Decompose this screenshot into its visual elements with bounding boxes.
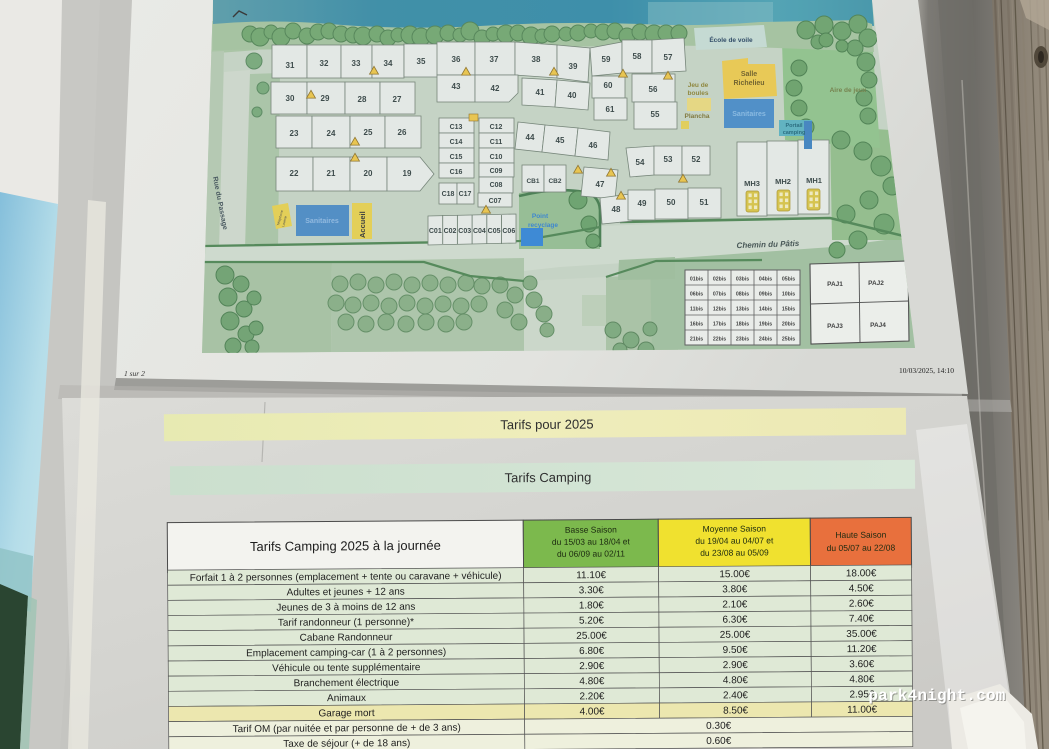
svg-text:2.60€: 2.60€	[849, 598, 875, 609]
svg-text:11.20€: 11.20€	[847, 644, 877, 655]
svg-text:Tarifs Camping: Tarifs Camping	[505, 470, 592, 486]
svg-text:du 15/03 au 18/04 et: du 15/03 au 18/04 et	[552, 536, 631, 547]
svg-text:6.80€: 6.80€	[579, 646, 605, 657]
svg-text:4.80€: 4.80€	[849, 674, 875, 685]
svg-text:Taxe de séjour (+ de 18 ans): Taxe de séjour (+ de 18 ans)	[283, 738, 410, 749]
svg-text:2.20€: 2.20€	[579, 691, 605, 702]
svg-text:2.90€: 2.90€	[723, 660, 749, 671]
svg-text:11.00€: 11.00€	[847, 704, 877, 715]
svg-text:du 19/04 au 04/07 et: du 19/04 au 04/07 et	[695, 535, 774, 546]
svg-text:0.60€: 0.60€	[706, 736, 732, 747]
svg-text:Garage mort: Garage mort	[318, 708, 374, 719]
svg-text:10/03/2025, 14:10: 10/03/2025, 14:10	[899, 366, 954, 375]
svg-text:Animaux: Animaux	[327, 693, 366, 704]
svg-text:Haute Saison: Haute Saison	[835, 530, 886, 540]
svg-text:Tarif OM (par nuitée et par pe: Tarif OM (par nuitée et par personne de …	[233, 723, 461, 736]
svg-text:18.00€: 18.00€	[846, 568, 877, 579]
svg-text:25.00€: 25.00€	[576, 631, 607, 642]
svg-text:du 23/08 au 05/09: du 23/08 au 05/09	[700, 547, 769, 557]
svg-text:Emplacement camping-car (1 à 2: Emplacement camping-car (1 à 2 personnes…	[246, 647, 446, 659]
svg-text:park4night.com: park4night.com	[868, 687, 1005, 705]
svg-text:4.80€: 4.80€	[723, 675, 749, 686]
svg-text:2.10€: 2.10€	[722, 599, 748, 610]
svg-text:Branchement électrique: Branchement électrique	[294, 678, 400, 690]
svg-text:0.30€: 0.30€	[706, 721, 732, 732]
svg-text:Véhicule ou tente supplémentai: Véhicule ou tente supplémentaire	[272, 662, 421, 674]
svg-text:11.10€: 11.10€	[576, 570, 606, 581]
svg-text:Forfait 1 à 2 personnes (empla: Forfait 1 à 2 personnes (emplacement + t…	[190, 571, 502, 584]
svg-text:2.90€: 2.90€	[579, 661, 605, 672]
svg-text:15.00€: 15.00€	[719, 569, 750, 580]
svg-text:du 06/09 au 02/11: du 06/09 au 02/11	[557, 548, 625, 558]
svg-text:4.00€: 4.00€	[580, 706, 606, 717]
svg-text:Jeunes de 3 à moins de 12 ans: Jeunes de 3 à moins de 12 ans	[276, 602, 415, 614]
svg-text:Moyenne Saison: Moyenne Saison	[703, 523, 767, 533]
svg-text:35.00€: 35.00€	[846, 629, 877, 640]
svg-text:5.20€: 5.20€	[579, 616, 605, 627]
svg-text:Adultes et jeunes + 12 ans: Adultes et jeunes + 12 ans	[287, 587, 405, 599]
svg-text:8.50€: 8.50€	[723, 705, 749, 716]
svg-text:4.50€: 4.50€	[849, 583, 875, 594]
svg-text:4.80€: 4.80€	[579, 676, 605, 687]
svg-text:Cabane Randonneur: Cabane Randonneur	[300, 632, 394, 644]
svg-text:7.40€: 7.40€	[849, 614, 875, 625]
svg-text:6.30€: 6.30€	[722, 614, 748, 625]
svg-text:9.50€: 9.50€	[723, 645, 749, 656]
svg-text:Tarifs pour 2025: Tarifs pour 2025	[500, 416, 593, 432]
svg-text:3.60€: 3.60€	[849, 659, 875, 670]
svg-text:3.80€: 3.80€	[722, 584, 748, 595]
svg-text:3.30€: 3.30€	[579, 585, 605, 596]
svg-text:1.80€: 1.80€	[579, 600, 605, 611]
svg-text:2.40€: 2.40€	[723, 690, 749, 701]
svg-text:du 05/07 au 22/08: du 05/07 au 22/08	[827, 543, 896, 553]
svg-text:Tarifs Camping 2025 à la journ: Tarifs Camping 2025 à la journée	[250, 538, 441, 554]
svg-text:Tarif randonneur (1 personne)*: Tarif randonneur (1 personne)*	[278, 617, 414, 629]
svg-text:25.00€: 25.00€	[720, 630, 751, 641]
svg-text:1 sur 2: 1 sur 2	[124, 369, 145, 378]
svg-text:Basse Saison: Basse Saison	[565, 524, 617, 534]
